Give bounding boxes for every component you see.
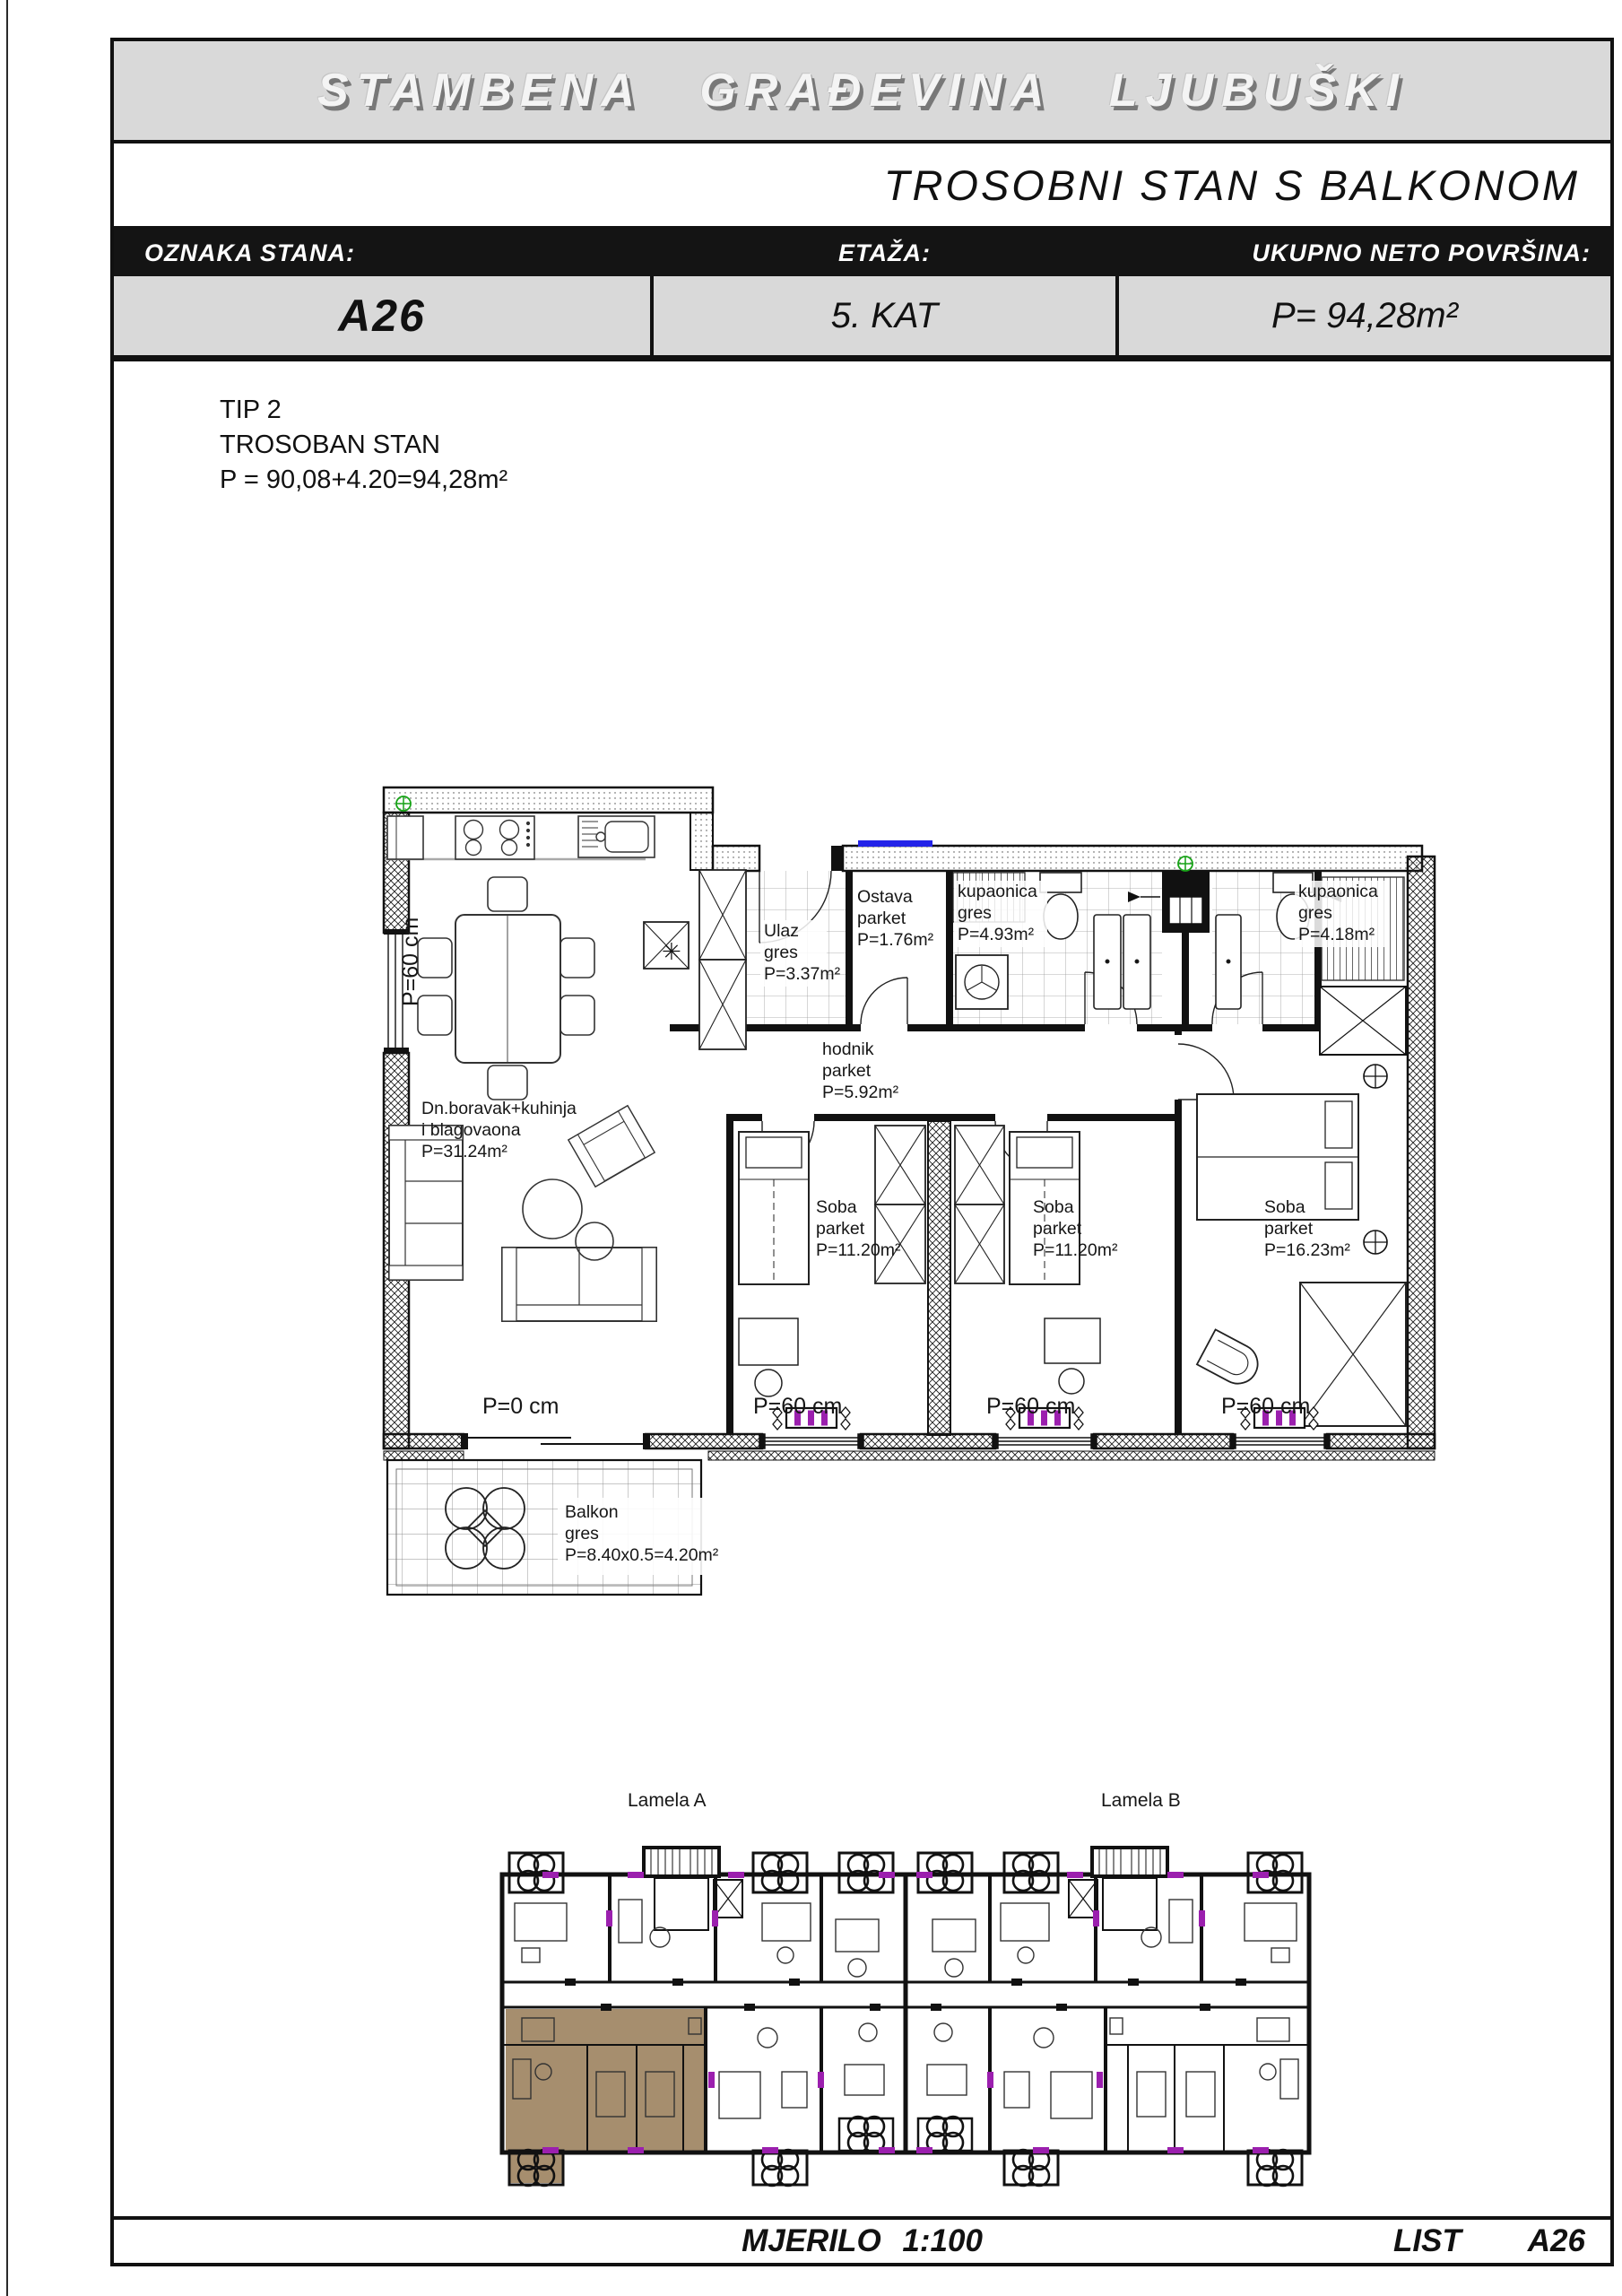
spec-table-values: A26 5. KAT P= 94,28m² — [114, 276, 1610, 361]
chair — [1059, 1369, 1084, 1394]
building-key-plan — [502, 1848, 1309, 2186]
footer-bar: MJERILO 1:100 LIST A26 — [114, 2216, 1610, 2263]
lamela-a-label: Lamela A — [628, 1790, 707, 1811]
svg-text:gres: gres — [565, 1524, 599, 1544]
svg-text:P=11.20m²: P=11.20m² — [1033, 1240, 1118, 1260]
key-plan-drawing: Lamela A Lamela B — [493, 1790, 1381, 2212]
lamela-b-plan — [906, 1848, 1309, 2186]
entry-closet — [644, 870, 746, 1049]
svg-text:parket: parket — [822, 1061, 872, 1081]
svg-text:Balkon: Balkon — [565, 1502, 619, 1522]
stove — [455, 816, 534, 859]
spec-label-oznaka: OZNAKA STANA: — [114, 239, 653, 267]
key-plan-svg: Lamela A Lamela B — [493, 1790, 1381, 2212]
chair — [755, 1370, 782, 1396]
sink — [578, 816, 655, 857]
washing-machine — [956, 955, 1008, 1009]
spec-label-etaza: ETAŽA: — [653, 239, 1116, 267]
star-symbol: ✳ — [662, 938, 681, 965]
svg-text:P=31.24m²: P=31.24m² — [421, 1142, 507, 1161]
kitchen — [386, 816, 655, 859]
info-line-tip: TIP 2 — [220, 393, 507, 428]
highlighted-unit-a26 — [506, 2009, 706, 2151]
spec-value-etaza: 5. KAT — [650, 276, 1115, 355]
floor-plan-drawing: ✳ — [377, 780, 1444, 1614]
svg-text:parket: parket — [1264, 1219, 1314, 1239]
bedroom1-furniture — [739, 1126, 925, 1396]
bedroom-windows — [759, 1434, 1330, 1448]
spec-table-header: OZNAKA STANA: ETAŽA: UKUPNO NETO POVRŠIN… — [114, 230, 1610, 276]
coffee-table — [523, 1179, 582, 1239]
sheet-title: TROSOBNI STAN S BALKONOM — [884, 161, 1610, 210]
vent-icon — [396, 796, 411, 811]
parapet-window3: P=60 cm — [1221, 1394, 1310, 1419]
svg-text:P=8.40x0.5=4.20m²: P=8.40x0.5=4.20m² — [565, 1545, 719, 1565]
entry-door-marker — [858, 840, 932, 847]
svg-text:Soba: Soba — [1033, 1197, 1074, 1217]
svg-text:gres: gres — [958, 903, 992, 923]
spec-value-povrsina: P= 94,28m² — [1115, 276, 1610, 355]
svg-text:Soba: Soba — [1264, 1197, 1305, 1217]
floor-plan-svg: ✳ — [377, 780, 1444, 1614]
svg-text:i blagovaona: i blagovaona — [421, 1120, 521, 1140]
svg-text:Soba: Soba — [816, 1197, 857, 1217]
parapet-left: P=60 cm — [398, 918, 423, 1006]
party-wall — [928, 1121, 950, 1435]
svg-text:P=3.37m²: P=3.37m² — [764, 964, 841, 984]
spec-label-povrsina: UKUPNO NETO POVRŠINA: — [1116, 239, 1610, 267]
chair — [1197, 1329, 1264, 1390]
desk — [1045, 1318, 1100, 1363]
room-label-kupaonica2: kupaonica gres P=4.18m² — [1295, 881, 1388, 947]
building-title: STAMBENA GRAĐEVINA LJUBUŠKI — [317, 64, 1407, 117]
scale-label: MJERILO 1:100 — [114, 2223, 1610, 2259]
svg-text:parket: parket — [816, 1219, 865, 1239]
svg-text:gres: gres — [1298, 903, 1332, 923]
room-label-ostava: Ostava parket P=1.76m² — [857, 887, 934, 950]
svg-text:Dn.boravak+kuhinja: Dn.boravak+kuhinja — [421, 1099, 577, 1118]
sofa-small — [502, 1248, 656, 1321]
svg-text:Ostava: Ostava — [857, 887, 913, 907]
svg-text:parket: parket — [857, 909, 906, 928]
spec-value-oznaka: A26 — [114, 276, 650, 355]
svg-text:P=4.93m²: P=4.93m² — [958, 925, 1035, 944]
svg-text:Ulaz: Ulaz — [764, 921, 799, 941]
svg-text:kupaonica: kupaonica — [958, 882, 1037, 901]
title-bar: STAMBENA GRAĐEVINA LJUBUŠKI — [114, 41, 1610, 143]
svg-text:parket: parket — [1033, 1219, 1082, 1239]
svg-text:hodnik: hodnik — [822, 1039, 874, 1059]
svg-text:P=16.23m²: P=16.23m² — [1264, 1240, 1350, 1260]
highlighted-unit-balcony — [509, 2152, 563, 2183]
bed-single — [739, 1132, 809, 1284]
subtitle-row: TROSOBNI STAN S BALKONOM — [114, 143, 1610, 230]
vent-icon — [1178, 857, 1193, 871]
info-line-type: TROSOBAN STAN — [220, 428, 507, 463]
page-edge-line — [6, 0, 8, 2296]
svg-text:P=11.20m²: P=11.20m² — [816, 1240, 901, 1260]
lamela-b-label: Lamela B — [1101, 1790, 1181, 1811]
parapet-window2: P=60 cm — [986, 1394, 1075, 1419]
room-label-hodnik: hodnik parket P=5.92m² — [822, 1039, 899, 1102]
desk — [739, 1318, 798, 1365]
dining-table — [418, 877, 594, 1100]
svg-text:P=1.76m²: P=1.76m² — [857, 930, 934, 950]
lamp-icon — [1364, 1231, 1387, 1254]
armchair — [568, 1106, 655, 1187]
svg-text:gres: gres — [764, 943, 798, 962]
sheet-label: LIST — [1393, 2223, 1462, 2259]
balcony-sliding-door — [462, 1434, 649, 1448]
parapet-balcony-door: P=0 cm — [482, 1394, 559, 1419]
room-label-kupaonica1: kupaonica gres P=4.93m² — [954, 881, 1047, 947]
svg-text:P=4.18m²: P=4.18m² — [1298, 925, 1375, 944]
balcony — [387, 1460, 703, 1595]
svg-text:P=5.92m²: P=5.92m² — [822, 1083, 899, 1102]
svg-text:kupaonica: kupaonica — [1298, 882, 1378, 901]
room-label-living: Dn.boravak+kuhinja i blagovaona P=31.24m… — [421, 1099, 577, 1161]
fridge — [387, 816, 423, 859]
lamp-icon — [1364, 1065, 1387, 1088]
info-line-area: P = 90,08+4.20=94,28m² — [220, 463, 507, 498]
sheet-number: A26 — [1528, 2223, 1585, 2259]
sheet-frame: STAMBENA GRAĐEVINA LJUBUŠKI TROSOBNI STA… — [110, 38, 1614, 2266]
apartment-info-block: TIP 2 TROSOBAN STAN P = 90,08+4.20=94,28… — [220, 393, 507, 498]
parapet-window1: P=60 cm — [753, 1394, 842, 1419]
